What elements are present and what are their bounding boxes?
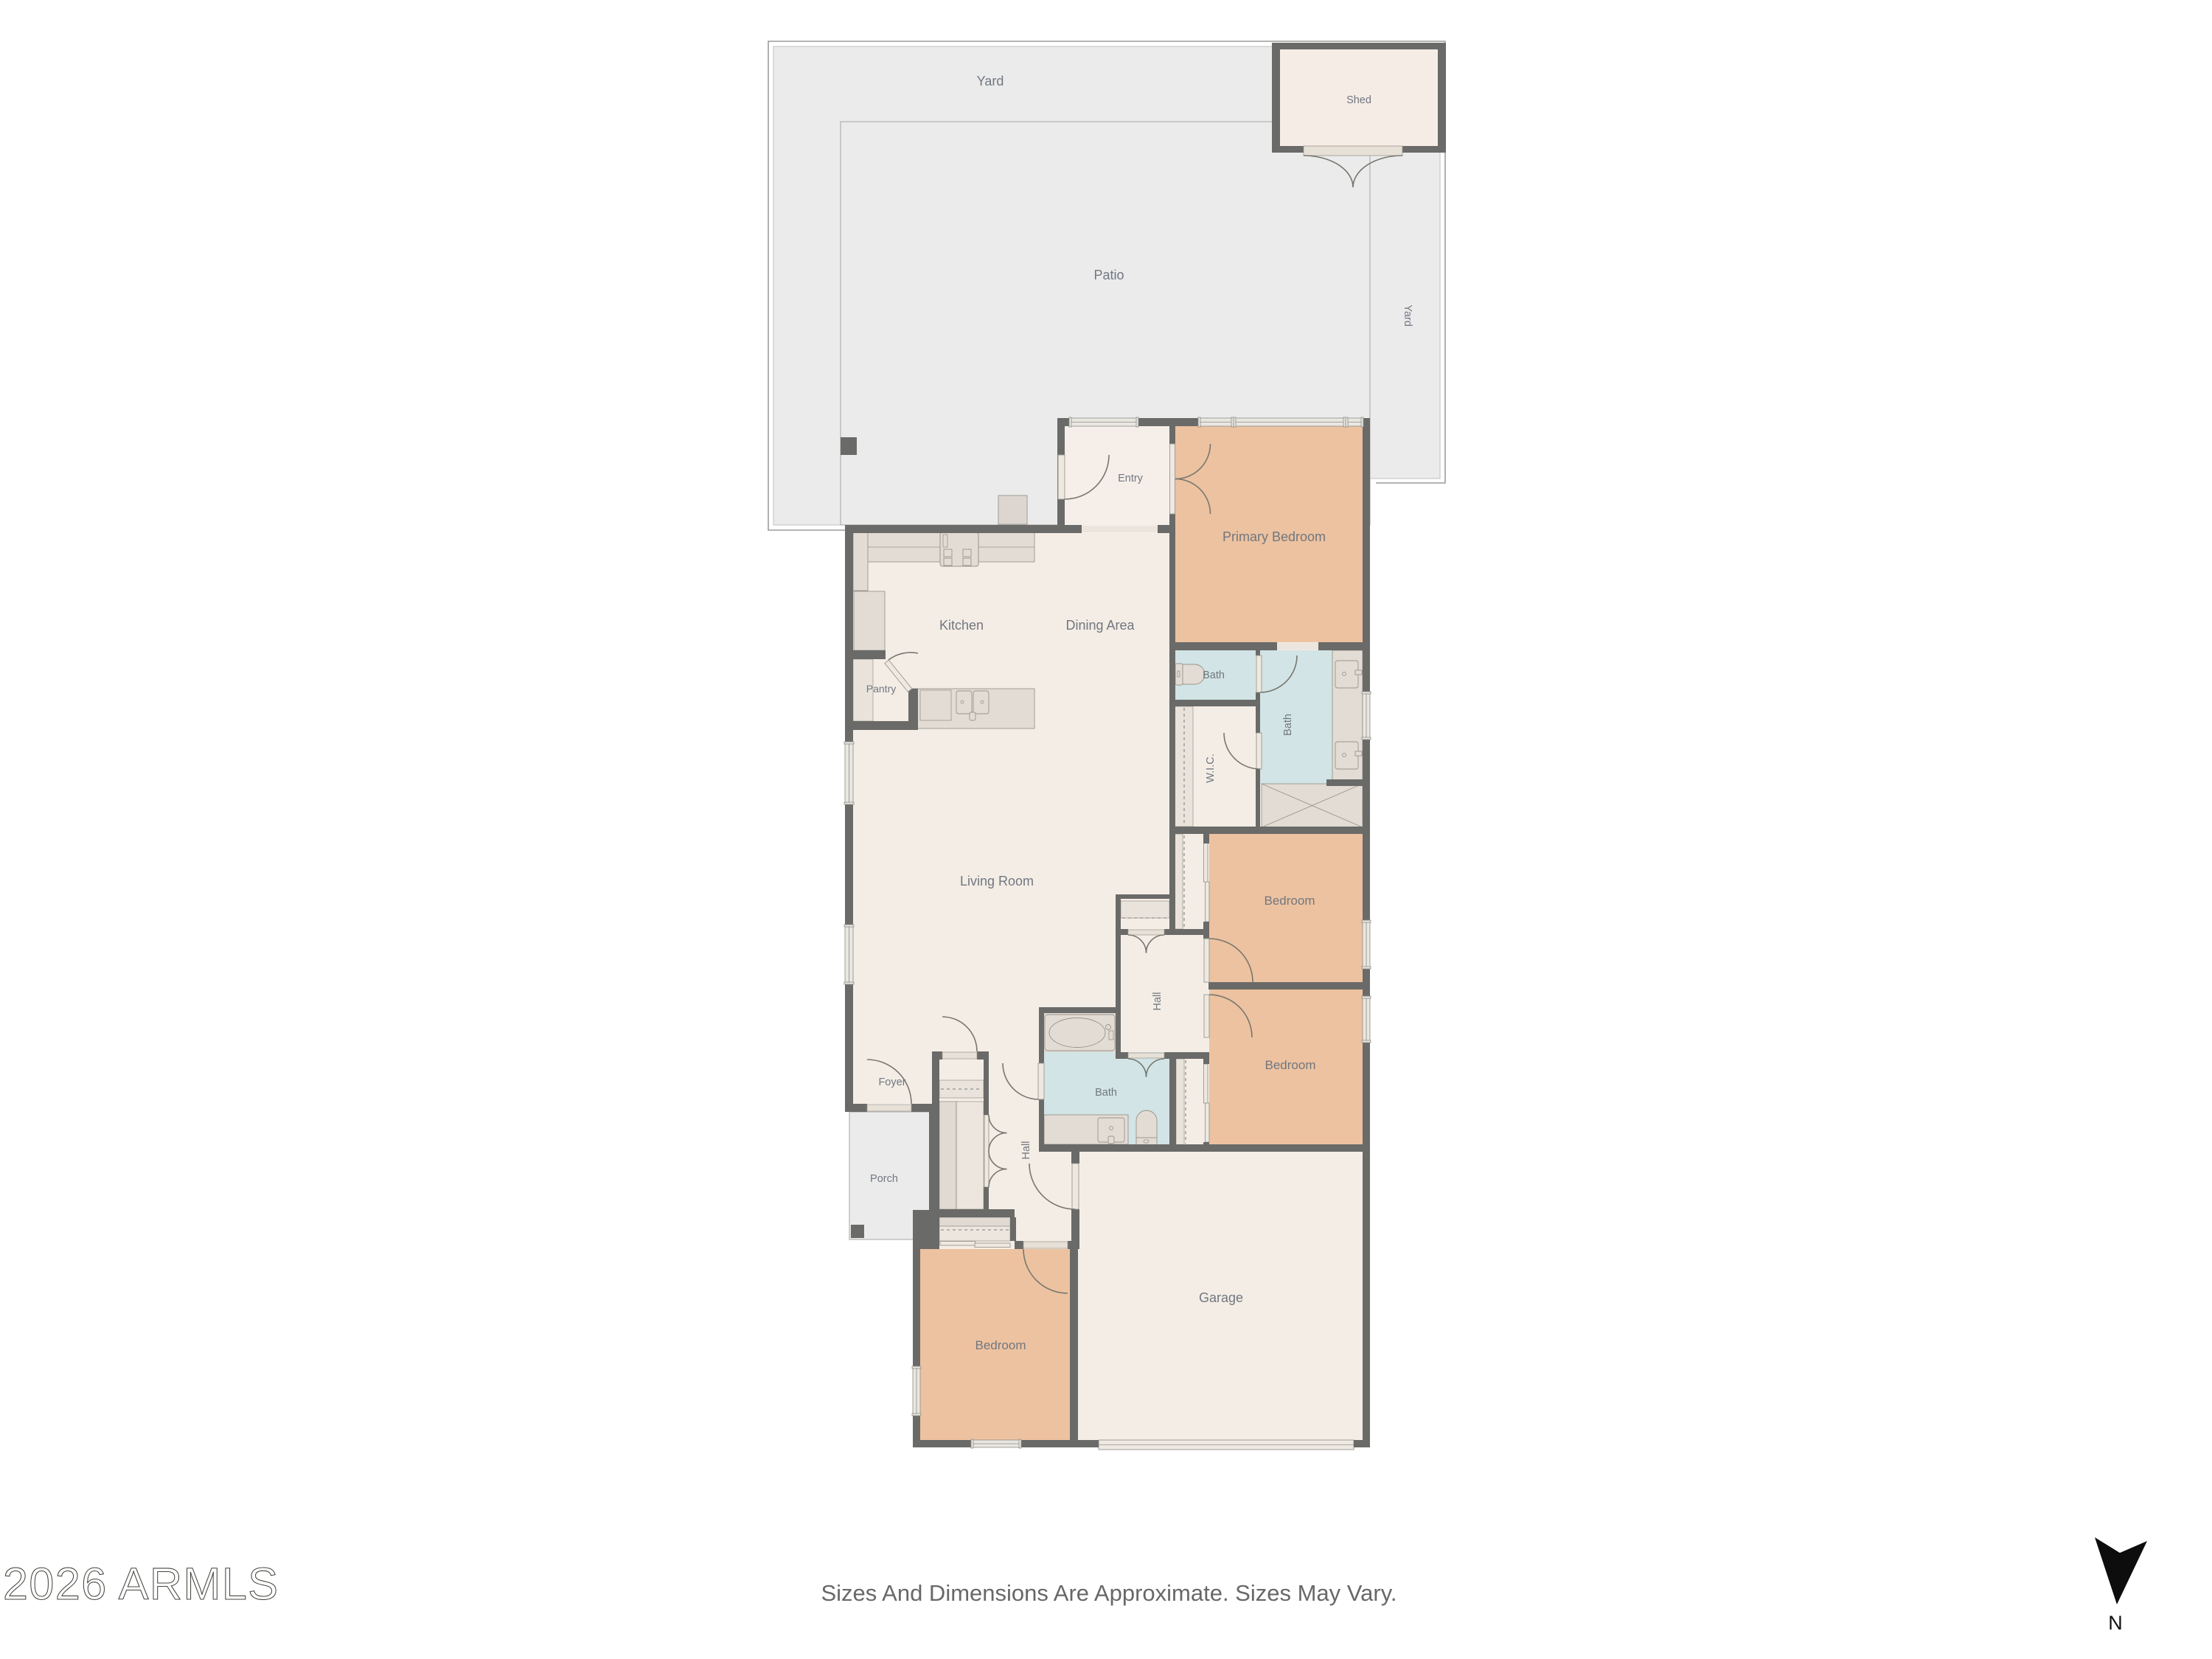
svg-text:Living Room: Living Room (960, 874, 1034, 888)
svg-text:Sizes And Dimensions Are Appro: Sizes And Dimensions Are Approximate. Si… (821, 1580, 1397, 1606)
svg-text:Bedroom: Bedroom (1265, 1058, 1316, 1072)
svg-text:Bath: Bath (1282, 714, 1294, 736)
svg-text:W.I.C.: W.I.C. (1205, 754, 1217, 782)
svg-text:Pantry: Pantry (866, 683, 896, 695)
svg-text:Porch: Porch (870, 1173, 898, 1185)
svg-text:Foyer: Foyer (878, 1077, 905, 1088)
svg-text:Bedroom: Bedroom (975, 1338, 1026, 1352)
svg-text:N: N (2108, 1612, 2123, 1634)
svg-text:Hall: Hall (1152, 992, 1164, 1011)
svg-text:Hall: Hall (1020, 1141, 1032, 1160)
svg-text:Patio: Patio (1093, 268, 1124, 282)
svg-text:Kitchen: Kitchen (939, 618, 984, 633)
svg-text:Yard: Yard (1402, 305, 1413, 327)
svg-text:Bedroom: Bedroom (1265, 894, 1315, 908)
svg-text:Yard: Yard (977, 74, 1004, 88)
svg-text:Entry: Entry (1118, 473, 1144, 484)
svg-text:Bath: Bath (1095, 1087, 1117, 1099)
svg-text:2026 ARMLS: 2026 ARMLS (3, 1559, 279, 1609)
svg-text:Shed: Shed (1346, 94, 1371, 106)
svg-text:Primary Bedroom: Primary Bedroom (1222, 529, 1326, 544)
svg-text:Dining Area: Dining Area (1065, 618, 1135, 633)
svg-text:Garage: Garage (1199, 1290, 1243, 1305)
svg-text:Bath: Bath (1203, 669, 1225, 681)
